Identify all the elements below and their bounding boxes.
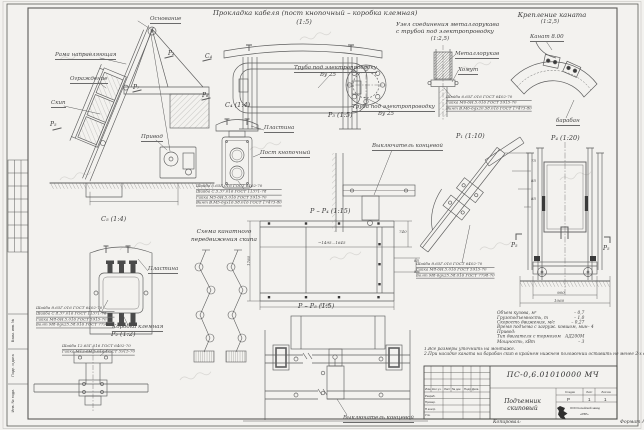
tb-sheets-header: Листов — [596, 390, 616, 394]
limit-switch-body — [362, 196, 379, 220]
callout-c4-post: Шайба 5.65Г.016 ГОСТ 6402-70 Шайба С.5.3… — [196, 184, 282, 206]
dim-pp4-bottom: 1730 — [320, 302, 330, 307]
mark-p7: Р₇ — [133, 84, 139, 91]
tb-sheet-header: Лист — [584, 390, 595, 394]
spec-value: – 3 — [578, 340, 584, 345]
title-rope-scheme-1: Схема канатного — [192, 229, 256, 235]
format-label: Формат А2 — [620, 420, 644, 425]
rope-drum — [226, 351, 246, 362]
label-osnovanie: Основание — [150, 16, 181, 24]
leader-lines — [546, 41, 574, 118]
drawing-sheet: Прокладка кабеля (пост кнопочный – короб… — [0, 0, 644, 430]
mark-p2: Р₂ — [168, 50, 174, 57]
label-privod: Привод — [141, 134, 163, 142]
label-plastina-2: Пластина — [148, 266, 178, 274]
tb-staff-prover: Провер. — [425, 400, 436, 404]
label-skip: Скип — [51, 100, 66, 108]
tb-header-ndok: № док. — [452, 387, 461, 391]
mark-p5-left: Р₅ — [511, 242, 517, 249]
general-notes: 1.Все размеры уточнить на монтаже. 2.При… — [424, 347, 617, 357]
mark-p6: Р₆ — [202, 92, 208, 99]
label-korobka: Коробка клемная — [112, 324, 163, 332]
margin-inv-podl: Инв. № подл. — [11, 384, 15, 417]
title-view-c5: С₅ (1:4) — [101, 215, 126, 223]
skip-wheel — [100, 140, 107, 147]
title-view-p4: Р₄ (1:20) — [551, 134, 580, 142]
label-vykl-2: Выключатель концевой — [343, 415, 414, 423]
skip-panel — [78, 117, 105, 145]
title-cable-routing: Прокладка кабеля (пост кнопочный – короб… — [213, 9, 395, 17]
doc-title: Подъемник скиповый — [490, 398, 555, 412]
rope-drum — [194, 351, 214, 362]
callout-sleeve: Шайба 6.65Г.016 ГОСТ 6402-70 Гайка М6-6Н… — [446, 95, 532, 112]
dim-p1-3: 85 — [531, 196, 536, 201]
spec-row: Мощность, кВт– 3 — [497, 340, 584, 345]
mark-c4: С₄ — [205, 53, 212, 60]
doc-number: ПС-0,6.01010000 МЧ — [491, 370, 615, 379]
title-sleeve-scale: (1:2,5) — [420, 36, 460, 42]
dim-pp4-right1: 740 — [399, 229, 407, 234]
rope — [536, 42, 556, 58]
title-rope-scheme-2: передвижения скипа — [188, 237, 260, 243]
c4-view-art — [216, 119, 264, 189]
skip-wheel — [123, 84, 130, 91]
dim-pp4-right2: 85 — [414, 258, 419, 263]
tb-stage-header: Стадия — [557, 390, 583, 394]
arched-beam — [224, 44, 382, 58]
leader-lines — [238, 126, 264, 189]
platform-wall — [170, 94, 209, 128]
tb-sheet-value: 1 — [588, 397, 591, 402]
copied-label: Копировал: — [493, 420, 521, 425]
callout-c5-box: Шайба 8.65Г.016 ГОСТ 6402-70 Шайба С.8.3… — [36, 306, 115, 328]
title-view-pp4: Р – Р₄ (1:15) — [310, 207, 350, 215]
spec-label: Мощность, кВт — [497, 340, 535, 345]
callout-p2-detail: Шайба 12.65Г.016 ГОСТ 6402-70 Гайка М12-… — [62, 344, 135, 355]
callout-p1-rail: Шайба 8.65Г.016 ГОСТ 6402-70 Гайка М8-6Н… — [416, 262, 495, 279]
limit-switch-body — [327, 366, 344, 399]
p2-detail-art — [34, 346, 148, 412]
dimension-lines — [505, 153, 531, 207]
label-rama: Рама направляющая — [55, 52, 116, 60]
p4-view-art — [516, 142, 610, 307]
pp5-view-art — [243, 316, 428, 421]
tb-header-data: Дата — [472, 387, 478, 391]
p3-view-art — [332, 150, 415, 232]
tb-header-list: Лист — [444, 387, 450, 391]
cable-routing-art — [224, 44, 390, 129]
title-view-p3: Р₃ (1:5) — [328, 111, 353, 119]
button-post-body — [222, 137, 252, 188]
label-vykl-1: Выключатель концевой — [372, 143, 443, 151]
title-view-c4: С₄ (1:4) — [225, 101, 250, 109]
margin-podp-data: Подп. и дата — [11, 349, 15, 382]
tech-specs: Объем кузова, м³– 0,7 Грузоподъемность, … — [497, 311, 584, 344]
mark-p5-main: Р₅ — [50, 121, 56, 128]
label-khomut: Хомут — [458, 67, 478, 75]
title-cable-routing-scale: (1:5) — [284, 18, 324, 26]
rope-scheme-art — [194, 250, 247, 362]
drum-flange-sector — [511, 62, 597, 97]
title-sleeve-2: с трубой под электропроводку — [396, 29, 492, 35]
title-sleeve-1: Узел соединения металлорукава — [396, 22, 492, 28]
tb-stage-value: Р — [567, 397, 570, 402]
skip-panel — [87, 95, 114, 123]
label-plastina-1: Пластина — [264, 125, 294, 133]
title-view-p1: Р₁ (1:10) — [456, 132, 485, 140]
label-kanat: Канат 8.00 — [530, 34, 564, 42]
callout-line: Винт В.М5-6gх16.58.016 ГОСТ 17473-80 — [196, 201, 282, 207]
company-logo — [557, 406, 568, 420]
label-ograzhdenie: Ограждение — [70, 76, 108, 84]
callout-line: Гайка М12-6Н.5.016 ГОСТ 5915-70 — [62, 350, 135, 356]
callout-line: Болт М8-6gх25.58.016 ГОСТ 7798-70 — [36, 323, 115, 329]
dim-pp4-right3: 85 — [414, 269, 419, 274]
leader-line — [337, 399, 347, 415]
tb-company-2: «РЗР» — [580, 412, 589, 416]
pp4-view-art — [247, 221, 420, 310]
label-baraban: барабан — [556, 118, 580, 126]
dim-p4-base1: 960 — [557, 290, 565, 295]
switch-roller — [333, 355, 337, 359]
main-view-art — [50, 15, 214, 205]
tb-staff-razrab: Разраб. — [425, 394, 435, 398]
bolt-nodes — [268, 222, 381, 298]
label-truba-2-size: Ву 25 — [378, 111, 394, 117]
tb-company-1: ООО Копейский завод — [570, 406, 600, 410]
dim-p4-base2: 1060 — [554, 298, 564, 303]
dim-p1-1: 75 — [531, 158, 536, 163]
leader-line — [374, 150, 392, 195]
junction-box — [239, 79, 248, 92]
dim-pp4-span: ~1495...1645 — [318, 240, 346, 245]
callout-line: Винт В.М6-6gх20.58.016 ГОСТ 17473-80 — [446, 106, 532, 112]
tb-header-izm: Изм. — [425, 387, 431, 391]
title-rope-fastening: Крепление каната — [512, 11, 592, 19]
title-rope-fastening-scale: (1:2,5) — [530, 19, 570, 25]
label-truba-1-size: Ву 25 — [320, 72, 336, 78]
dim-p1-2: 85 — [531, 178, 536, 183]
label-metallorukav: Металлорукав — [455, 51, 499, 59]
note-line: 2.При насадке каната на барабан скип в к… — [424, 352, 617, 357]
label-post-knopochny: Пост кнопочный — [260, 150, 310, 158]
tb-header-koluch: Кол.уч. — [432, 387, 441, 391]
tb-staff-utv: Утв. — [425, 413, 430, 417]
mark-p5-right: Р₅ — [603, 245, 609, 252]
spec-value: – 4 — [588, 325, 594, 330]
tb-sheets-value: 1 — [604, 397, 607, 402]
margin-vzam-inv: Взам. инв. № — [11, 314, 15, 347]
view-arrow-marks — [516, 234, 610, 243]
dim-pp4-left: 1780 — [246, 256, 251, 266]
leader-line — [462, 225, 470, 263]
drive-unit — [160, 147, 196, 178]
tb-header-podp: Подп. — [464, 387, 472, 391]
tb-staff-nkontr: Н.контр. — [425, 407, 436, 411]
callout-line: Болт М8-6gх25.58.016 ГОСТ 7798-70 — [416, 273, 495, 279]
